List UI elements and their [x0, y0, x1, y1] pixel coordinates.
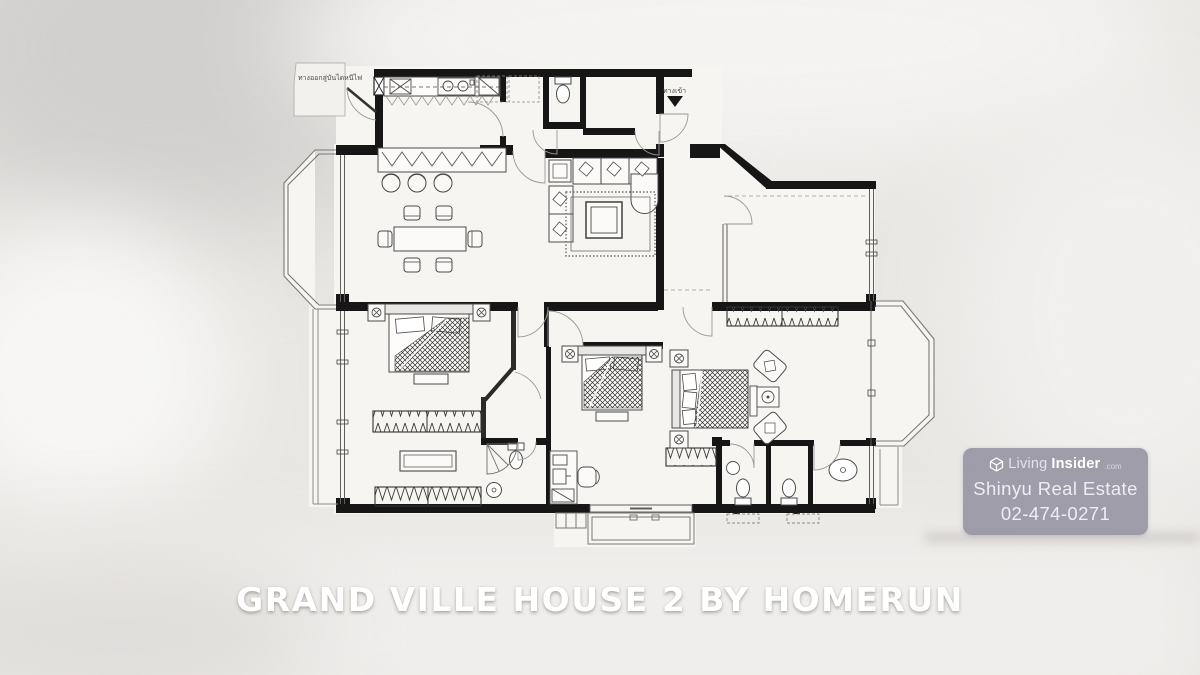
sink — [727, 462, 740, 475]
wardrobe — [727, 307, 838, 326]
sink — [487, 483, 502, 498]
dining-chair — [404, 258, 420, 272]
agency-name: Shinyu Real Estate — [973, 477, 1138, 501]
dining-chair — [378, 231, 392, 247]
screenshot-stage: ทางออกสู่บันไดหนีไฟ — [0, 0, 1200, 675]
side-table — [757, 387, 779, 407]
dining-table — [394, 227, 466, 251]
bar-stool — [408, 174, 426, 192]
toilet — [781, 479, 797, 505]
fire-exit-label: ทางออกสู่บันไดหนีไฟ — [298, 73, 362, 82]
wardrobe — [373, 411, 481, 432]
kitchen-counter — [384, 77, 500, 96]
cube-house-icon — [989, 457, 1004, 472]
brand-insider: Insider — [1051, 457, 1100, 472]
bed-headboard — [578, 346, 646, 355]
dining-chair — [404, 206, 420, 220]
dining-chair — [436, 206, 452, 220]
brand-living: Living — [1008, 457, 1047, 472]
wardrobe — [666, 448, 716, 466]
bed-bench — [750, 386, 757, 416]
brand-tld: .com — [1104, 463, 1121, 471]
bar-counter — [378, 148, 506, 172]
wc-toilet — [555, 77, 571, 103]
watermark-badge: LivingInsider.com Shinyu Real Estate 02-… — [963, 448, 1148, 535]
dining-chair — [468, 231, 482, 247]
bed-bench — [414, 374, 448, 384]
entrance-label: ทางเข้า — [663, 87, 686, 95]
bed-bench — [596, 412, 628, 421]
phone-number: 02-474-0271 — [1001, 502, 1110, 526]
floor-plan: ทางออกสู่บันไดหนีไฟ — [0, 0, 1200, 675]
bed-headboard — [385, 304, 473, 314]
page-title: GRAND VILLE HOUSE 2 BY HOMERUN — [0, 580, 1200, 619]
master-sink — [829, 459, 857, 481]
coffee-table — [586, 202, 622, 238]
desk-chair — [578, 467, 599, 487]
toilet — [735, 479, 751, 505]
toilet — [508, 443, 524, 469]
dining-chair — [436, 258, 452, 272]
wardrobe — [375, 487, 481, 506]
bar-stool — [382, 174, 400, 192]
master-bed — [672, 370, 757, 428]
dressing-island — [400, 451, 456, 471]
chaise-lounge — [631, 174, 658, 214]
brand-row: LivingInsider.com — [989, 457, 1121, 472]
bar-stool — [434, 174, 452, 192]
